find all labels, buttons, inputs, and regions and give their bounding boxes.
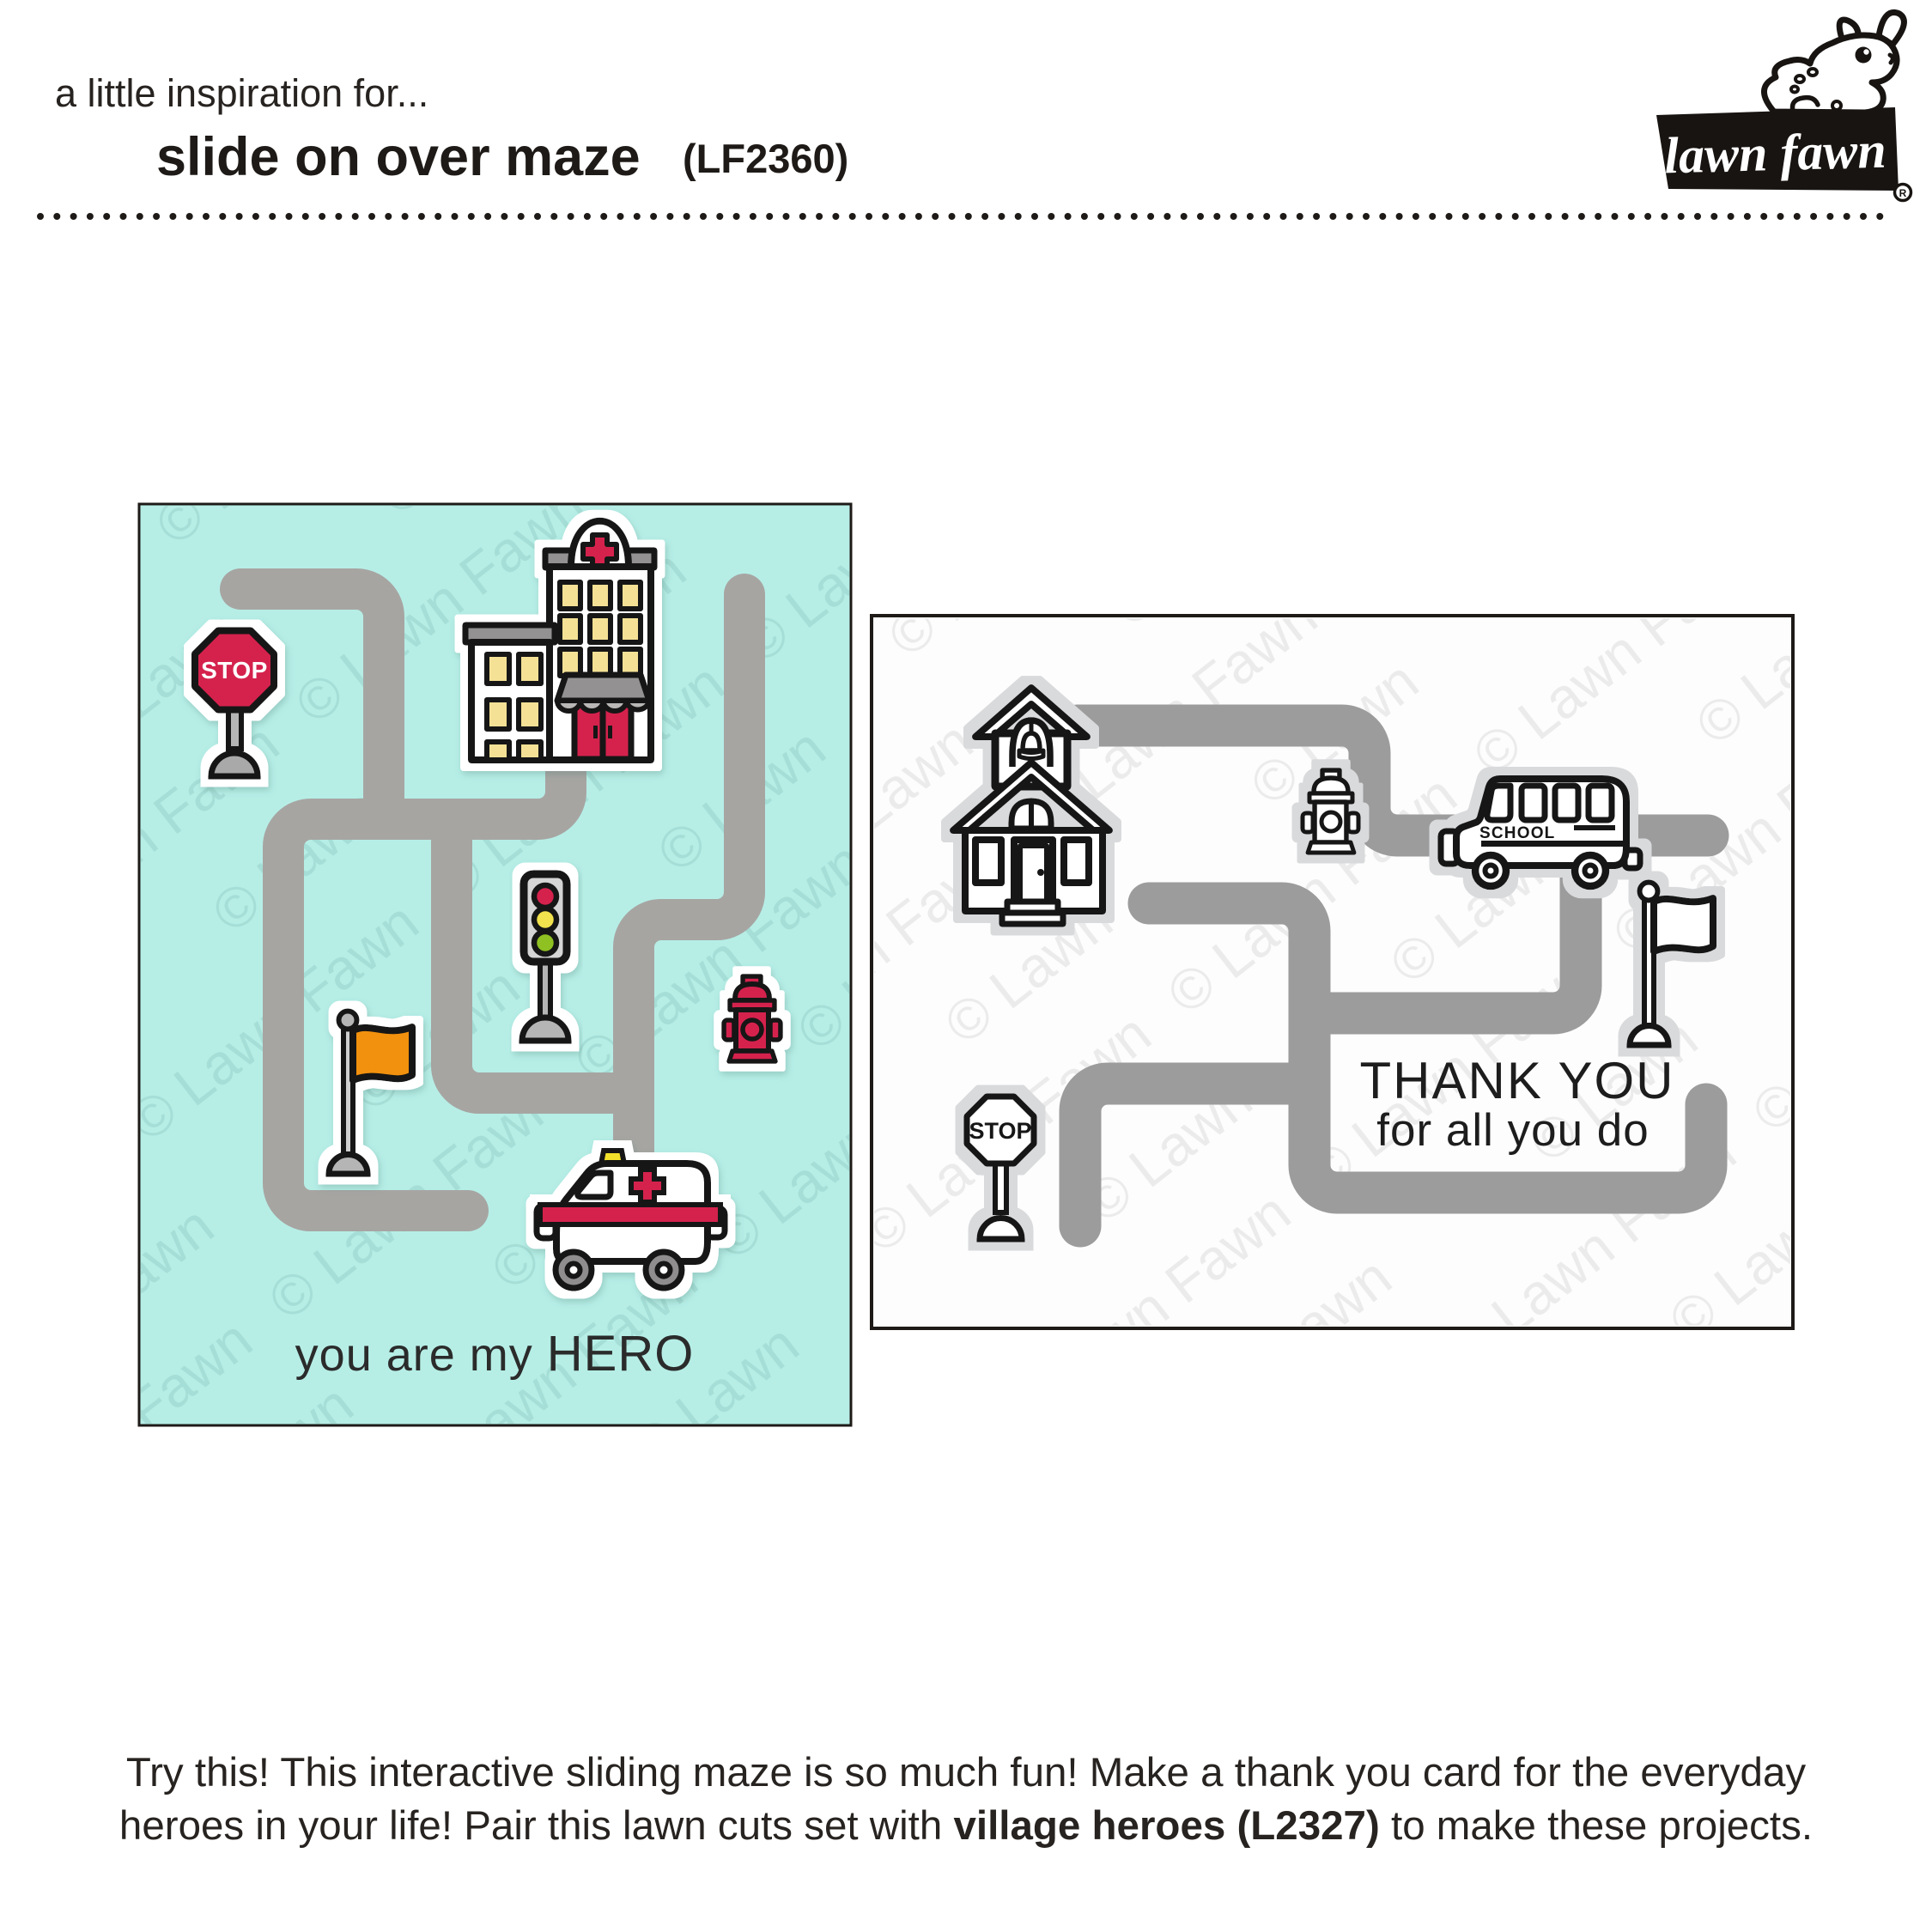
svg-text:R: R: [1899, 187, 1907, 199]
svg-text:SCHOOL: SCHOOL: [1479, 824, 1555, 842]
svg-text:you are my HERO: you are my HERO: [295, 1326, 695, 1382]
svg-text:STOP: STOP: [201, 657, 268, 683]
svg-text:slide on over maze: slide on over maze: [156, 127, 641, 187]
svg-text:for all you do: for all you do: [1376, 1105, 1649, 1156]
svg-text:Try this! This interactive sli: Try this! This interactive sliding maze …: [126, 1750, 1807, 1795]
svg-text:a little inspiration for...: a little inspiration for...: [55, 71, 428, 115]
svg-text:THANK YOU: THANK YOU: [1360, 1052, 1675, 1109]
svg-text:(LF2360): (LF2360): [683, 136, 848, 181]
svg-text:heroes in your life! Pair this: heroes in your life! Pair this lawn cuts…: [119, 1803, 1813, 1849]
svg-text:STOP: STOP: [969, 1118, 1031, 1144]
svg-text:lawn fawn: lawn fawn: [1663, 122, 1886, 185]
